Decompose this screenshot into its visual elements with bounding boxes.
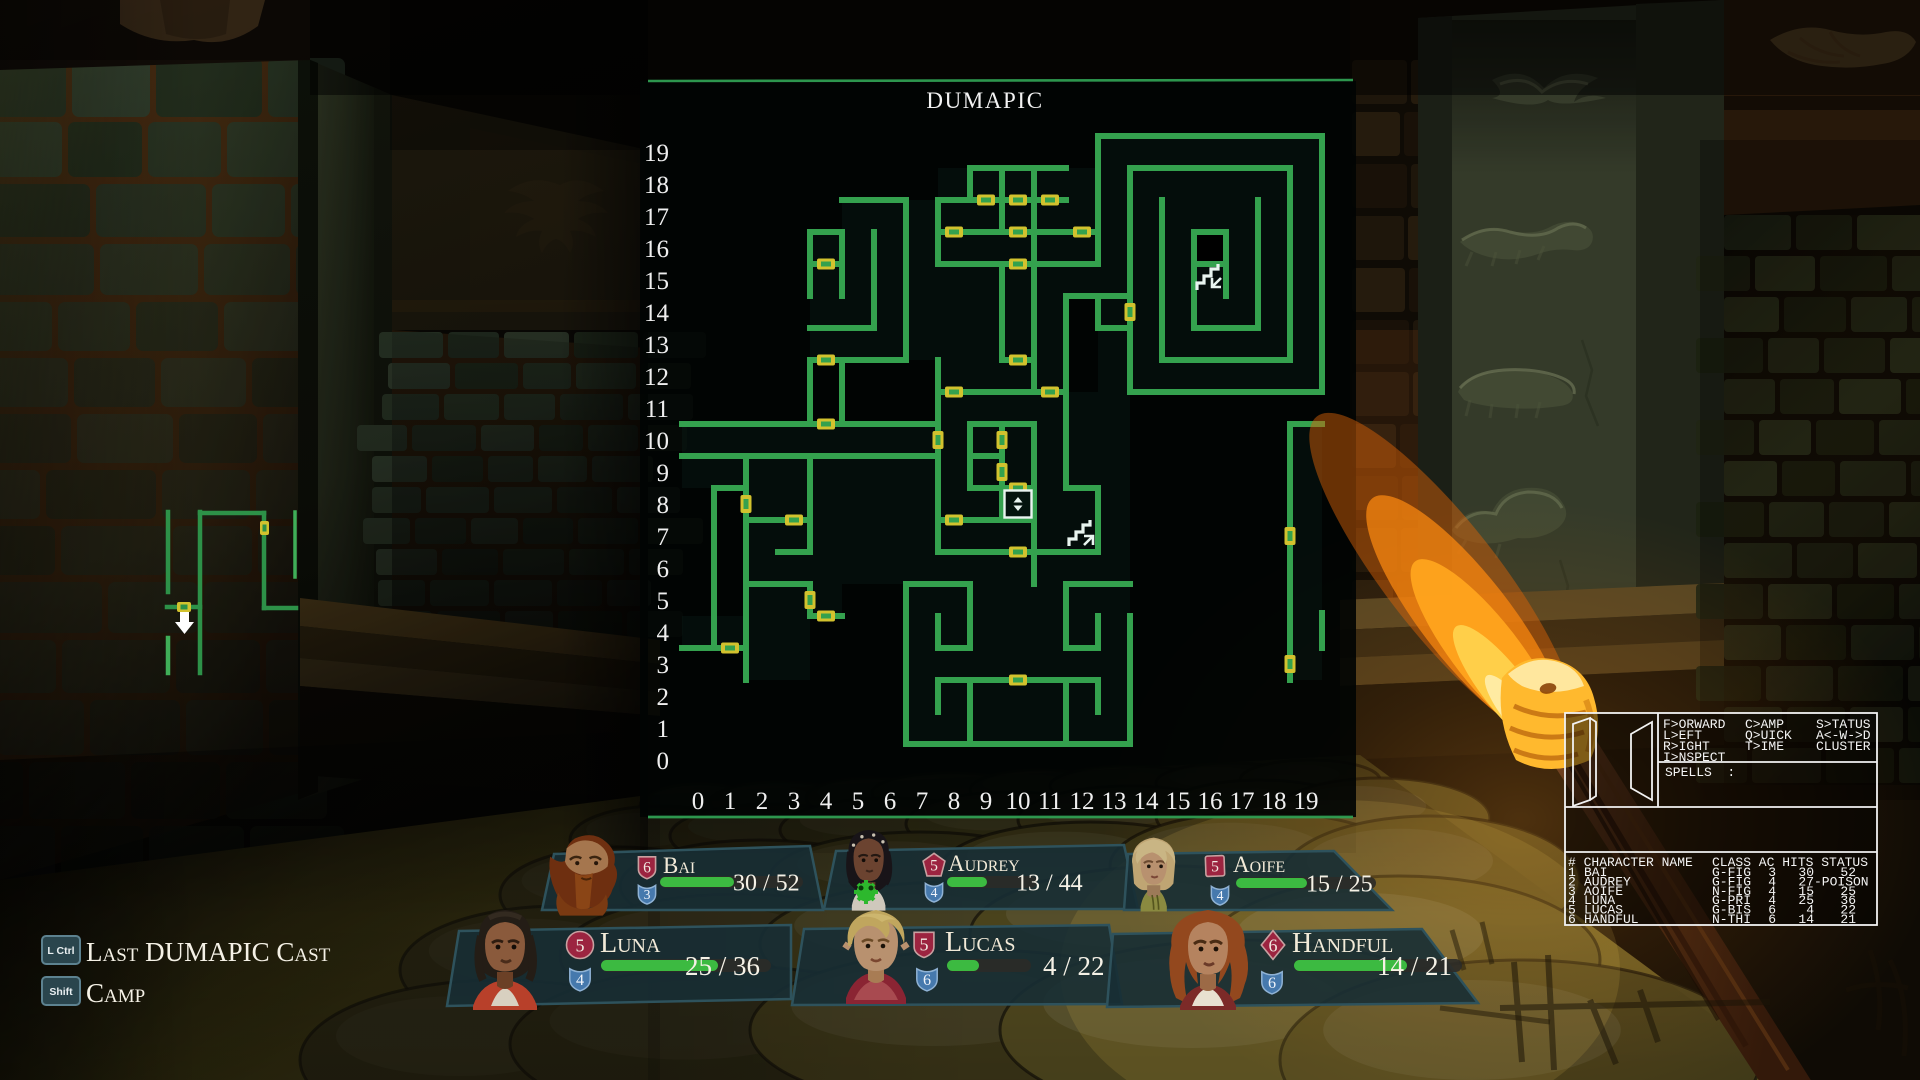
svg-text:N-THI: N-THI [1712, 912, 1751, 927]
svg-text:6: 6 [923, 972, 931, 989]
svg-text:Last DUMAPIC Cast: Last DUMAPIC Cast [86, 937, 331, 967]
svg-text:4: 4 [657, 620, 670, 647]
svg-text:5: 5 [657, 588, 670, 615]
svg-text:2: 2 [756, 788, 769, 815]
svg-text:6: 6 [884, 788, 897, 815]
svg-text:1: 1 [657, 716, 670, 743]
svg-text:13: 13 [644, 332, 669, 359]
svg-text:10: 10 [644, 428, 669, 455]
svg-text:18: 18 [644, 172, 669, 199]
svg-text:4: 4 [820, 788, 833, 815]
svg-text:14 / 21: 14 / 21 [1377, 951, 1452, 981]
svg-text:15: 15 [1166, 788, 1191, 815]
svg-text:21: 21 [1840, 912, 1856, 927]
svg-text:15 / 25: 15 / 25 [1306, 872, 1373, 898]
svg-text:14: 14 [1798, 912, 1814, 927]
svg-text:10: 10 [1006, 788, 1031, 815]
svg-text:13 / 44: 13 / 44 [1016, 871, 1083, 897]
svg-text:Audrey: Audrey [948, 851, 1020, 876]
svg-text:2: 2 [657, 684, 670, 711]
svg-text:9: 9 [980, 788, 993, 815]
svg-text:5: 5 [930, 857, 938, 874]
svg-text:CLUSTER: CLUSTER [1816, 739, 1871, 754]
svg-text:0: 0 [657, 748, 670, 775]
svg-text:L Ctrl: L Ctrl [47, 945, 74, 957]
svg-text:7: 7 [657, 524, 670, 551]
svg-text:17: 17 [644, 204, 669, 231]
svg-text:4 / 22: 4 / 22 [1043, 951, 1105, 981]
svg-text:3: 3 [788, 788, 801, 815]
svg-text:14: 14 [1134, 788, 1160, 815]
svg-text:17: 17 [1230, 788, 1255, 815]
svg-text:Aoife: Aoife [1233, 852, 1285, 877]
svg-text:16: 16 [644, 236, 669, 263]
svg-text:3: 3 [657, 652, 670, 679]
svg-text:11: 11 [1038, 788, 1062, 815]
svg-text:6: 6 [1268, 975, 1276, 992]
svg-text:4: 4 [576, 972, 584, 989]
svg-text:5: 5 [1211, 858, 1219, 875]
svg-text:1: 1 [724, 788, 737, 815]
svg-text:11: 11 [645, 396, 669, 423]
svg-text:T>IME: T>IME [1745, 739, 1784, 754]
svg-text:8: 8 [657, 492, 670, 519]
svg-text:12: 12 [644, 364, 669, 391]
svg-text:15: 15 [644, 268, 669, 295]
svg-text:HANDFUL: HANDFUL [1584, 912, 1639, 927]
svg-text:DUMAPIC: DUMAPIC [926, 88, 1043, 113]
svg-text:13: 13 [1102, 788, 1127, 815]
svg-text:I>NSPECT: I>NSPECT [1663, 750, 1726, 765]
svg-text:14: 14 [644, 300, 670, 327]
svg-text:19: 19 [644, 140, 669, 167]
svg-text:19: 19 [1294, 788, 1319, 815]
svg-text:Camp: Camp [86, 978, 145, 1008]
svg-text:4: 4 [931, 885, 938, 900]
svg-text:8: 8 [948, 788, 961, 815]
svg-text:5: 5 [852, 788, 865, 815]
svg-text:7: 7 [916, 788, 929, 815]
svg-text:SPELLS :: SPELLS : [1665, 765, 1735, 780]
svg-text:12: 12 [1070, 788, 1095, 815]
svg-text:18: 18 [1262, 788, 1287, 815]
svg-text:3: 3 [644, 887, 651, 902]
svg-text:25 / 36: 25 / 36 [685, 951, 760, 981]
svg-text:6: 6 [643, 859, 651, 876]
svg-text:Luna: Luna [600, 928, 661, 959]
svg-text:9: 9 [657, 460, 670, 487]
svg-text:6: 6 [657, 556, 670, 583]
svg-text:6: 6 [1269, 935, 1278, 955]
svg-text:5: 5 [920, 934, 929, 954]
svg-text:6: 6 [1568, 912, 1576, 927]
svg-text:5: 5 [576, 935, 585, 955]
svg-text:16: 16 [1198, 788, 1223, 815]
svg-text:0: 0 [692, 788, 705, 815]
svg-text:30 / 52: 30 / 52 [733, 871, 800, 897]
svg-text:4: 4 [1217, 888, 1224, 903]
svg-text:Lucas: Lucas [945, 927, 1015, 958]
svg-text:Shift: Shift [49, 986, 73, 998]
svg-text:Bai: Bai [663, 853, 695, 878]
svg-text:6: 6 [1768, 912, 1776, 927]
